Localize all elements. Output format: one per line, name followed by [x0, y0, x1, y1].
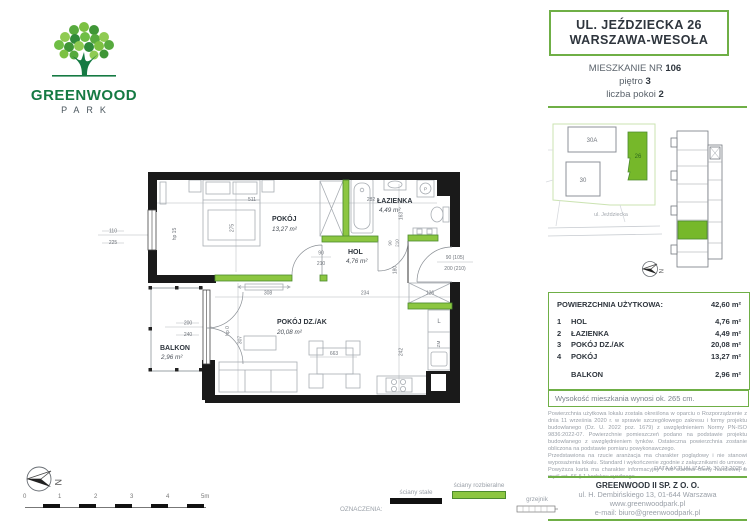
room-area-hol: 4,76 m² — [346, 258, 368, 265]
washing-machine-label: P — [424, 187, 427, 192]
balcony-door-frame — [203, 290, 210, 364]
bathtub — [351, 179, 373, 233]
rooms-line: liczba pokoi 2 — [549, 88, 721, 101]
scale-tick: 3 — [130, 494, 133, 500]
address-line1: UL. JEŹDZIECKA 26 — [555, 18, 723, 33]
dim-balcony-w: 200 — [184, 321, 193, 327]
apartment-number-line: MIESZKANIE NR 106 — [549, 62, 721, 75]
structural-walls — [148, 172, 460, 403]
dim-282: 282 — [367, 197, 376, 203]
dim-511: 511 — [248, 197, 256, 203]
footer-website: www.greenwoodpark.pl — [548, 499, 747, 508]
logo-tree-icon — [28, 18, 140, 80]
window-bedroom — [148, 210, 156, 250]
dim-180: 180 — [393, 266, 399, 275]
height-note: Wysokość mieszkania wynosi ok. 265 cm. — [548, 390, 749, 407]
address-box: UL. JEŹDZIECKA 26 WARSZAWA-WESOŁA — [549, 10, 729, 56]
coffee-table — [244, 336, 276, 350]
dim-163: 163 — [399, 212, 405, 221]
scale-tick: 2 — [94, 494, 97, 500]
street-label: ul. Jeździecka — [594, 212, 628, 218]
dim-entry-w: 90 (105) — [446, 255, 465, 261]
room-label-lazienka: ŁAZIENKA — [377, 198, 412, 205]
fridge-label: L — [437, 319, 441, 325]
scale-tick: 4 — [166, 494, 169, 500]
street-lines — [548, 226, 662, 236]
legend-solid-walls: ściany stałe — [388, 490, 444, 504]
scale-bar: 0 1 2 3 4 5m — [25, 494, 210, 514]
dim-234: 234 — [361, 291, 370, 297]
highlighted-unit — [678, 221, 707, 239]
scale-tick: 5m — [201, 494, 209, 500]
bed — [189, 180, 274, 246]
area-table: POWIERZCHNIA UŻYTKOWA: 42,60 m² 1HOL4,76… — [548, 292, 750, 390]
greenwood-park-logo: GREENWOOD PARK — [28, 18, 140, 115]
legend-removable-walls: ściany rozbieralne — [448, 483, 510, 499]
divider-bottom — [548, 519, 747, 521]
address-line2: WARSZAWA-WESOŁA — [555, 33, 723, 48]
legend-radiator: grzejnik — [514, 497, 560, 515]
washbasin — [384, 179, 406, 190]
table-row: 4POKÓJ13,27 m² — [557, 352, 741, 361]
dim-window-h: 225 — [109, 240, 118, 246]
room-label-hol: HOL — [348, 249, 364, 256]
radiator-living — [238, 284, 290, 290]
building-30-label: 30 — [580, 178, 587, 184]
wardrobe-bedroom — [320, 181, 343, 236]
floor-plan: POKÓJ 13,27 m² ŁAZIENKA 4,49 m² HOL 4,76… — [90, 140, 480, 415]
svg-text:N: N — [53, 479, 63, 486]
dim-275: 275 — [230, 224, 236, 233]
solid-wall-swatch — [390, 498, 442, 504]
north-arrow-icon: N — [22, 462, 72, 498]
table-row-balcony: xBALKON2,96 m² — [557, 370, 741, 379]
legend-label: OZNACZENIA: — [340, 506, 382, 513]
bathroom-cabinet — [413, 228, 437, 235]
room-label-pokoj: POKÓJ — [272, 214, 297, 223]
logo-subtitle: PARK — [34, 105, 140, 115]
dim-window-w: 110 — [109, 229, 117, 235]
radiator-window — [160, 182, 166, 204]
toilet — [431, 207, 449, 222]
dim-bathdoor-w: 90 — [388, 240, 393, 246]
dim-balcony-h: 240 — [184, 332, 193, 338]
apartment-info: MIESZKANIE NR 106 piętro 3 liczba pokoi … — [549, 62, 721, 101]
removable-wall-swatch — [452, 491, 506, 499]
footer: GREENWOOD II SP. Z O. O. ul. H. Dembińsk… — [548, 481, 747, 517]
dim-663: 663 — [330, 351, 339, 357]
radiator-icon — [515, 505, 559, 513]
logo-name: GREENWOOD — [28, 87, 140, 104]
scale-tick: 1 — [58, 494, 61, 500]
dim-door-w: 90 — [318, 251, 324, 257]
room-area-pokoj-dz: 20,08 m² — [276, 329, 303, 336]
svg-text:N: N — [657, 269, 663, 273]
shaft — [431, 374, 446, 391]
dim-door-h: 210 — [317, 261, 326, 267]
dim-308: 308 — [264, 291, 273, 297]
dining-set — [309, 341, 360, 388]
room-area-balkon: 2,96 m² — [160, 354, 183, 361]
dim-bathdoor-h: 210 — [395, 239, 400, 247]
footer-company: GREENWOOD II SP. Z O. O. — [548, 481, 747, 490]
dishwasher-label: ZM — [436, 341, 441, 348]
dim-242: 242 — [399, 348, 405, 357]
site-plan: 30A 30 26 ul. Jeździecka N — [545, 112, 750, 290]
room-label-pokoj-dz: POKÓJ DZ./AK — [277, 317, 327, 326]
footer-address: ul. H. Dembińskiego 13, 01-644 Warszawa — [548, 490, 747, 499]
kitchen-sink — [431, 352, 447, 366]
table-row: 1HOL4,76 m² — [557, 317, 741, 326]
table-row: 3POKÓJ DZ./AK20,08 m² — [557, 340, 741, 349]
room-label-balkon: BALKON — [160, 345, 190, 352]
divider-footer-top — [548, 476, 747, 478]
building-30a-label: 30A — [587, 138, 598, 144]
scale-tick: 0 — [23, 494, 26, 500]
dim-entry-h: 200 (210) — [444, 266, 466, 272]
bedroom-door — [292, 245, 322, 275]
area-table-title: POWIERZCHNIA UŻYTKOWA: — [557, 300, 663, 309]
dim-307: 307 — [238, 336, 244, 345]
dim-hp15: hp 15 — [172, 228, 178, 241]
room-area-pokoj: 13,27 m² — [272, 226, 298, 233]
divider-top — [548, 106, 747, 108]
table-row: 2ŁAZIENKA4,49 m² — [557, 329, 741, 338]
dim-126: 126 — [426, 291, 435, 297]
sofa — [219, 362, 297, 392]
dim-hp0: hp 0 — [225, 326, 231, 336]
update-date: DATA AKTUALIZACJI: 30.07.2025 r. — [548, 466, 747, 472]
area-table-total: 42,60 m² — [711, 300, 741, 309]
footer-email: e-mail: biuro@greenwoodpark.pl — [548, 508, 747, 517]
floor-line: piętro 3 — [549, 75, 721, 88]
site-north-arrow-icon: N — [643, 262, 664, 277]
building-floorplate — [671, 131, 722, 267]
building-26-label: 26 — [635, 154, 642, 160]
entrance-door — [417, 247, 452, 282]
